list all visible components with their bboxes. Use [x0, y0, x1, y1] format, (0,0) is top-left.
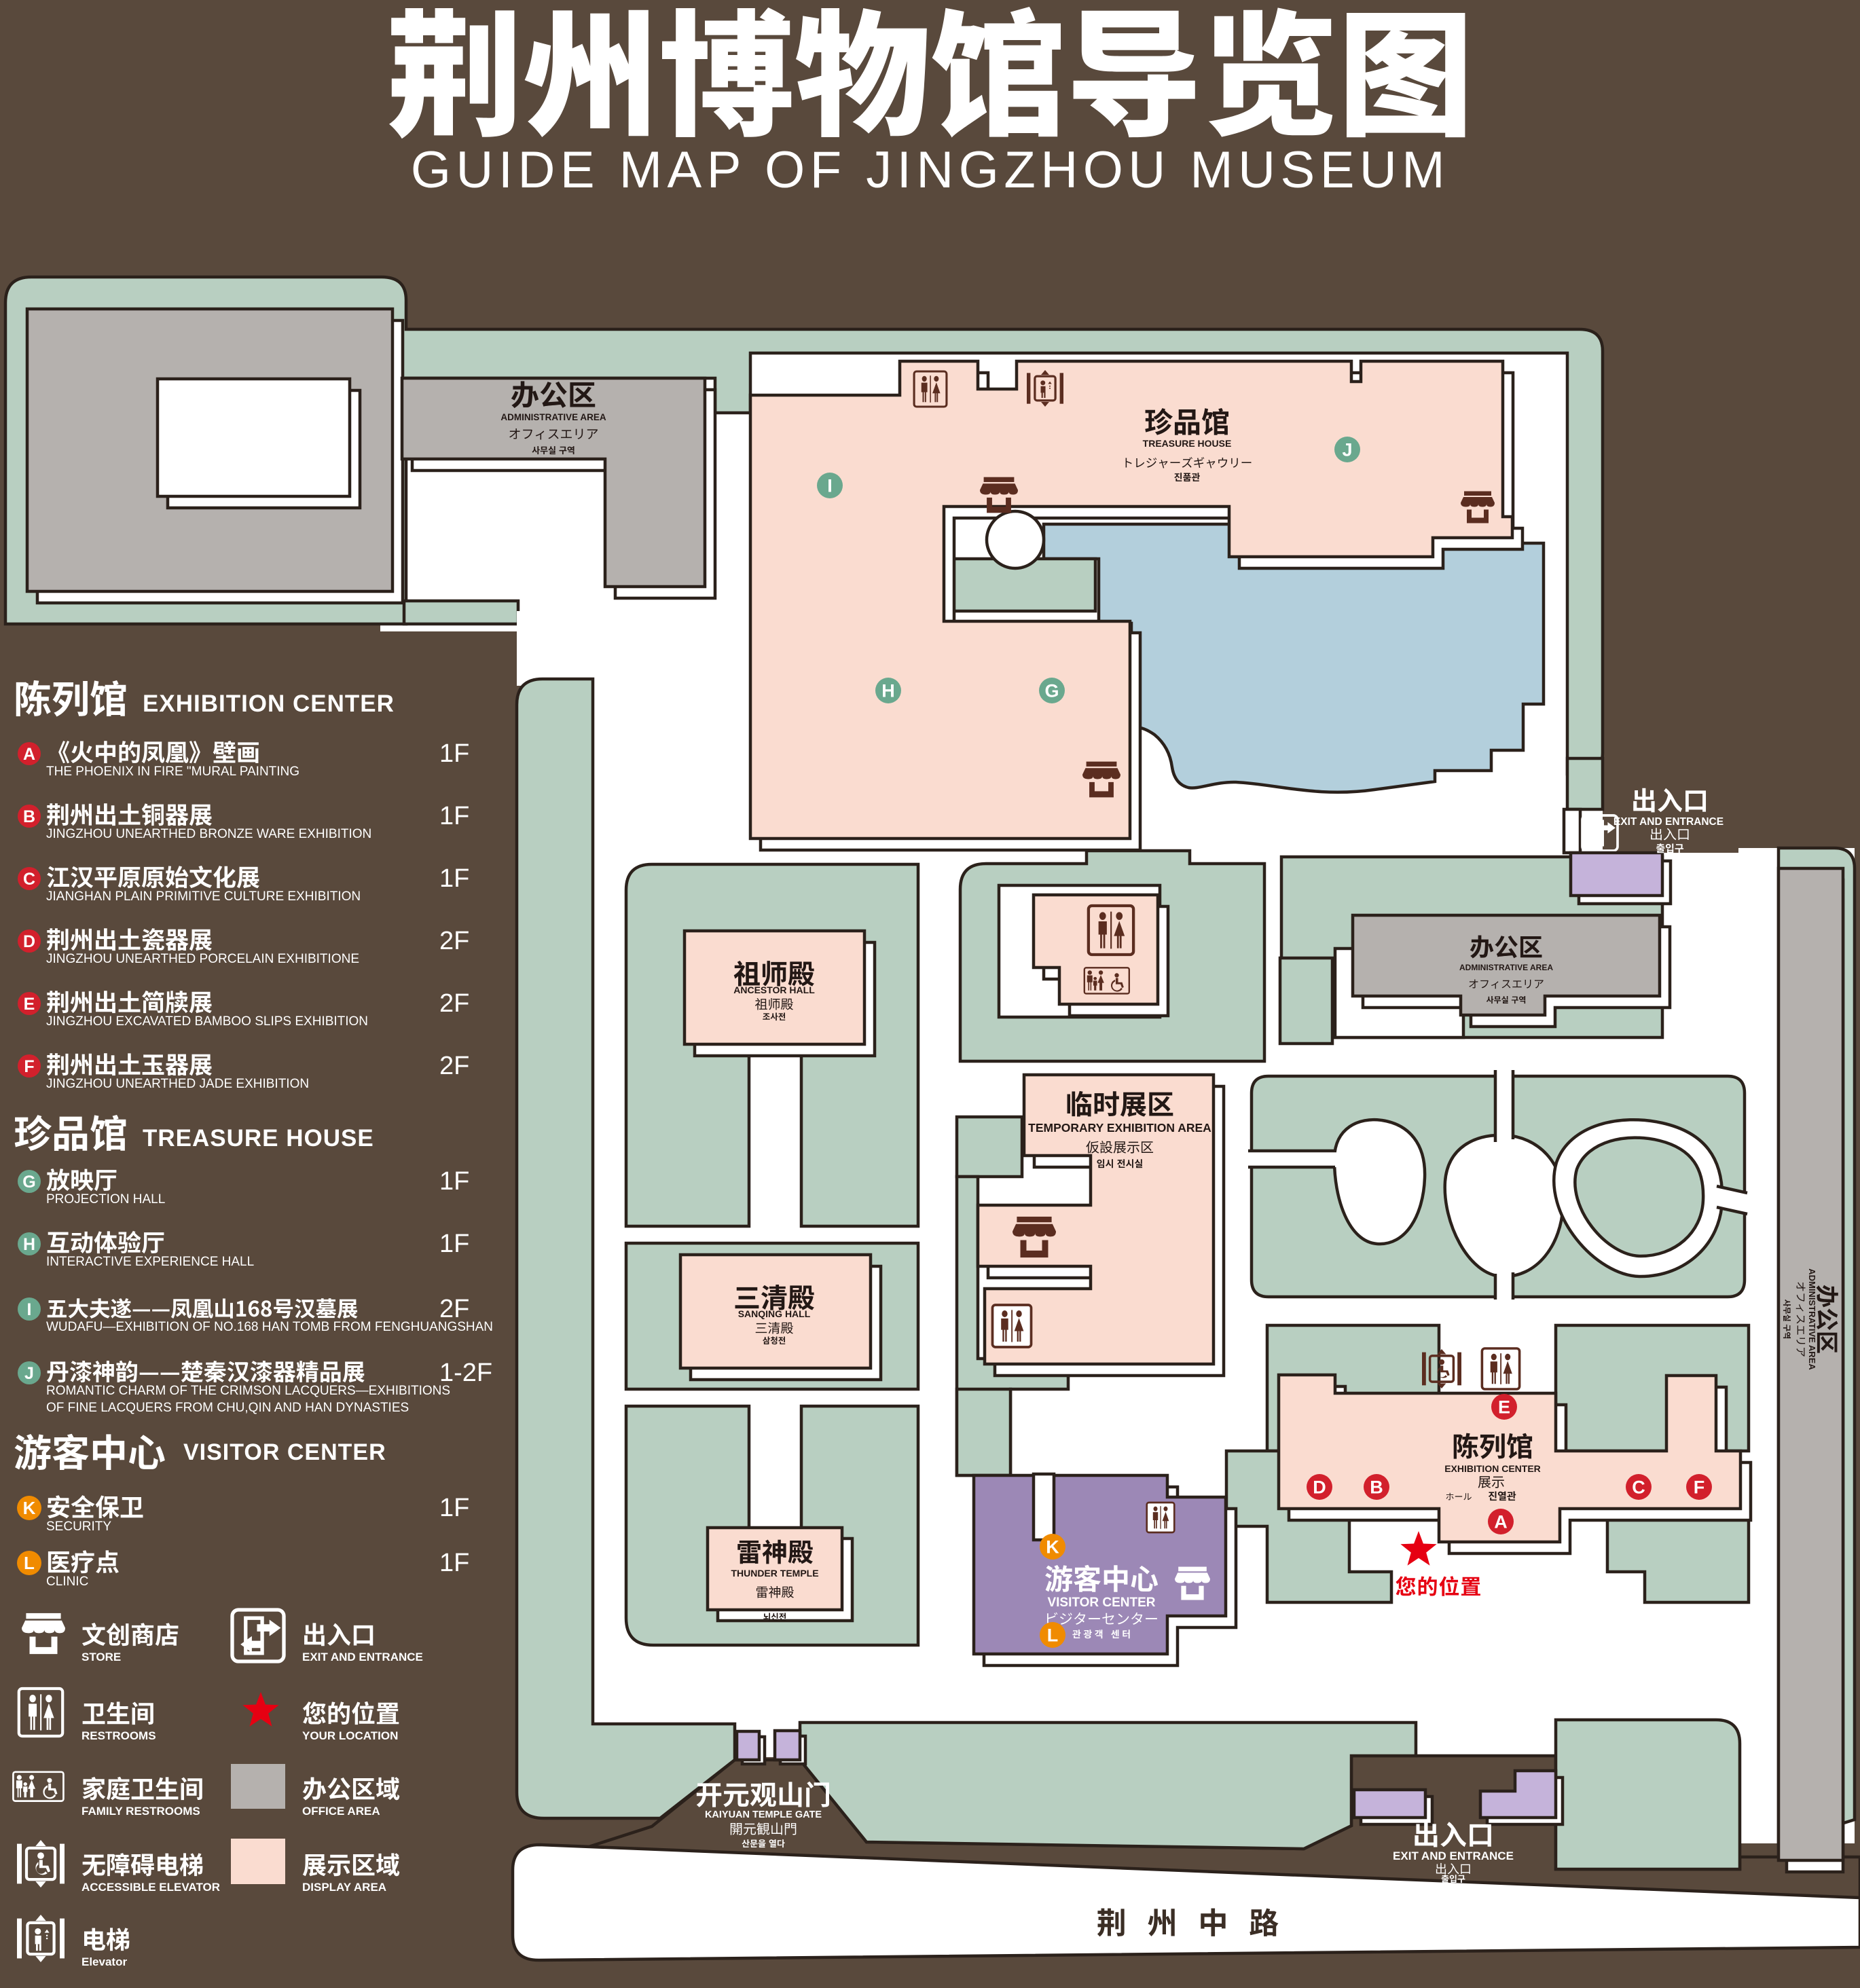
svg-text:F: F — [24, 1057, 34, 1076]
svg-text:EXIT AND ENTRANCE: EXIT AND ENTRANCE — [1393, 1849, 1514, 1862]
svg-text:INTERACTIVE EXPERIENCE HALL: INTERACTIVE EXPERIENCE HALL — [46, 1255, 254, 1269]
svg-text:E: E — [24, 995, 35, 1014]
svg-text:C: C — [1632, 1477, 1645, 1498]
svg-text:I: I — [827, 476, 833, 496]
svg-text:ACCESSIBLE ELEVATOR: ACCESSIBLE ELEVATOR — [81, 1881, 220, 1894]
svg-text:JIANGHAN PLAIN PRIMITIVE CULTU: JIANGHAN PLAIN PRIMITIVE CULTURE EXHIBIT… — [46, 889, 361, 904]
svg-text:EXIT AND ENTRANCE: EXIT AND ENTRANCE — [1613, 816, 1724, 828]
svg-text:ROMANTIC CHARM OF THE CRIMSON: ROMANTIC CHARM OF THE CRIMSON LACQUERS—E… — [46, 1384, 450, 1398]
svg-text:SECURITY: SECURITY — [46, 1520, 111, 1534]
svg-text:TREASURE HOUSE: TREASURE HOUSE — [143, 1125, 374, 1152]
svg-text:J: J — [1342, 440, 1352, 460]
svg-text:1F: 1F — [439, 1549, 469, 1577]
svg-text:TREASURE HOUSE: TREASURE HOUSE — [1143, 438, 1232, 449]
svg-text:F: F — [1694, 1477, 1705, 1498]
svg-text:SANQING HALL: SANQING HALL — [738, 1308, 811, 1319]
svg-text:G: G — [22, 1173, 35, 1192]
svg-text:D: D — [23, 932, 35, 951]
svg-text:1F: 1F — [439, 1230, 469, 1258]
svg-text:H: H — [881, 681, 895, 701]
svg-text:Elevator: Elevator — [81, 1955, 127, 1968]
svg-text:GUIDE MAP OF JINGZHOU MUSEUM: GUIDE MAP OF JINGZHOU MUSEUM — [411, 141, 1450, 199]
svg-text:G: G — [1044, 681, 1059, 701]
svg-text:ADMINISTRATIVE AREA: ADMINISTRATIVE AREA — [500, 412, 606, 422]
svg-text:J: J — [24, 1364, 34, 1383]
svg-text:1F: 1F — [439, 1167, 469, 1196]
svg-text:TEMPORARY EXHIBITION AREA: TEMPORARY EXHIBITION AREA — [1028, 1121, 1211, 1135]
svg-text:YOUR LOCATION: YOUR LOCATION — [302, 1729, 398, 1742]
svg-text:WUDAFU—EXHIBITION OF NO.168 HA: WUDAFU—EXHIBITION OF NO.168 HAN TOMB FRO… — [46, 1320, 493, 1334]
svg-text:2F: 2F — [439, 1052, 469, 1080]
svg-text:THE PHOENIX IN FIRE "MURAL PAI: THE PHOENIX IN FIRE "MURAL PAINTING — [46, 765, 299, 779]
svg-text:D: D — [1313, 1477, 1326, 1498]
svg-text:OFFICE AREA: OFFICE AREA — [302, 1805, 380, 1818]
svg-text:EXHIBITION CENTER: EXHIBITION CENTER — [1444, 1463, 1541, 1474]
svg-text:JINGZHOU UNEARTHED PORCELAIN E: JINGZHOU UNEARTHED PORCELAIN EXHIBITIONE — [46, 952, 359, 966]
svg-text:KAIYUAN TEMPLE GATE: KAIYUAN TEMPLE GATE — [705, 1809, 822, 1820]
svg-text:EXHIBITION CENTER: EXHIBITION CENTER — [143, 691, 395, 717]
svg-text:L: L — [1047, 1625, 1059, 1646]
svg-text:1F: 1F — [439, 864, 469, 893]
svg-text:JINGZHOU UNEARTHED BRONZE WARE: JINGZHOU UNEARTHED BRONZE WARE EXHIBITIO… — [46, 827, 371, 841]
svg-text:2F: 2F — [439, 927, 469, 955]
svg-text:PROJECTION HALL: PROJECTION HALL — [46, 1192, 165, 1207]
svg-text:K: K — [23, 1498, 36, 1518]
svg-text:VISITOR CENTER: VISITOR CENTER — [1047, 1596, 1155, 1610]
svg-text:L: L — [24, 1553, 35, 1573]
svg-text:1F: 1F — [439, 739, 469, 768]
svg-text:DISPLAY AREA: DISPLAY AREA — [302, 1881, 386, 1894]
svg-text:THUNDER TEMPLE: THUNDER TEMPLE — [731, 1568, 818, 1579]
svg-text:FAMILY RESTROOMS: FAMILY RESTROOMS — [81, 1805, 200, 1818]
svg-text:1-2F: 1-2F — [439, 1359, 492, 1387]
svg-text:2F: 2F — [439, 1295, 469, 1323]
svg-text:I: I — [27, 1300, 32, 1319]
svg-text:1F: 1F — [439, 1494, 469, 1522]
svg-text:2F: 2F — [439, 989, 469, 1018]
svg-text:K: K — [1046, 1537, 1059, 1558]
svg-text:ADMINISTRATIVE AREA: ADMINISTRATIVE AREA — [1459, 963, 1553, 972]
svg-text:B: B — [1370, 1477, 1383, 1498]
svg-text:A: A — [1494, 1512, 1508, 1532]
svg-text:RESTROOMS: RESTROOMS — [81, 1729, 156, 1742]
svg-text:JINGZHOU UNEARTHED JADE EXHIBI: JINGZHOU UNEARTHED JADE EXHIBITION — [46, 1077, 309, 1091]
svg-text:VISITOR CENTER: VISITOR CENTER — [183, 1439, 386, 1465]
svg-text:STORE: STORE — [81, 1651, 121, 1663]
svg-text:E: E — [1498, 1397, 1510, 1418]
svg-text:ANCESTOR HALL: ANCESTOR HALL — [733, 984, 815, 995]
svg-text:ADMINISTRATIVE AREA: ADMINISTRATIVE AREA — [1807, 1268, 1817, 1370]
svg-text:JINGZHOU EXCAVATED BAMBOO SLIP: JINGZHOU EXCAVATED BAMBOO SLIPS EXHIBITI… — [46, 1014, 368, 1029]
svg-text:C: C — [23, 870, 35, 889]
svg-text:EXIT AND ENTRANCE: EXIT AND ENTRANCE — [302, 1651, 423, 1663]
svg-text:CLINIC: CLINIC — [46, 1575, 88, 1589]
svg-text:H: H — [23, 1235, 35, 1254]
svg-text:B: B — [23, 807, 35, 826]
svg-text:OF FINE LACQUERS FROM CHU,QIN: OF FINE LACQUERS FROM CHU,QIN AND HAN DY… — [46, 1401, 409, 1415]
svg-text:A: A — [23, 745, 35, 764]
svg-text:1F: 1F — [439, 802, 469, 830]
